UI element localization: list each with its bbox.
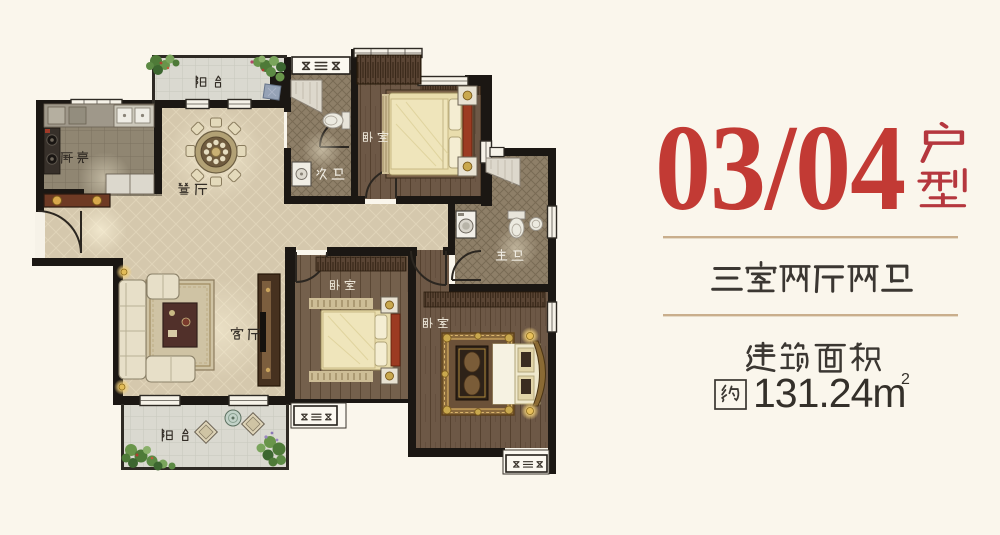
svg-text:131.24m: 131.24m (753, 370, 906, 416)
svg-text:03/04: 03/04 (655, 100, 905, 236)
svg-text:2: 2 (901, 371, 910, 388)
